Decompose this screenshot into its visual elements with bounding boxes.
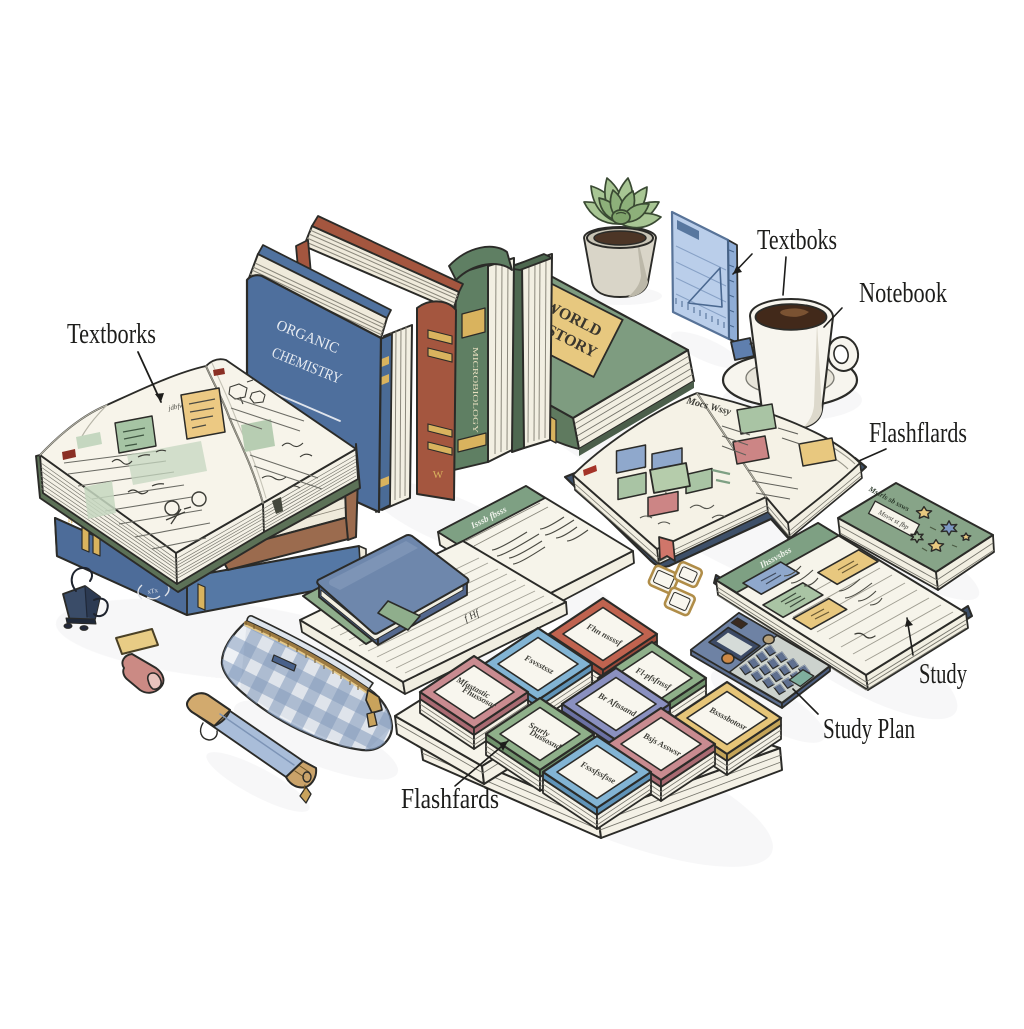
svg-text:Flashflards: Flashflards bbox=[869, 417, 967, 449]
svg-text:Textborks: Textborks bbox=[67, 318, 156, 350]
svg-text:Study Plan: Study Plan bbox=[823, 714, 915, 745]
svg-text:Flashfards: Flashfards bbox=[401, 784, 499, 815]
svg-text:Textboks: Textboks bbox=[757, 224, 837, 256]
svg-text:W: W bbox=[433, 469, 444, 481]
svg-text:Notebook: Notebook bbox=[859, 277, 947, 309]
svg-text:Study: Study bbox=[919, 658, 967, 690]
svg-text:MICROBIOLOGY: MICROBIOLOGY bbox=[471, 347, 480, 434]
